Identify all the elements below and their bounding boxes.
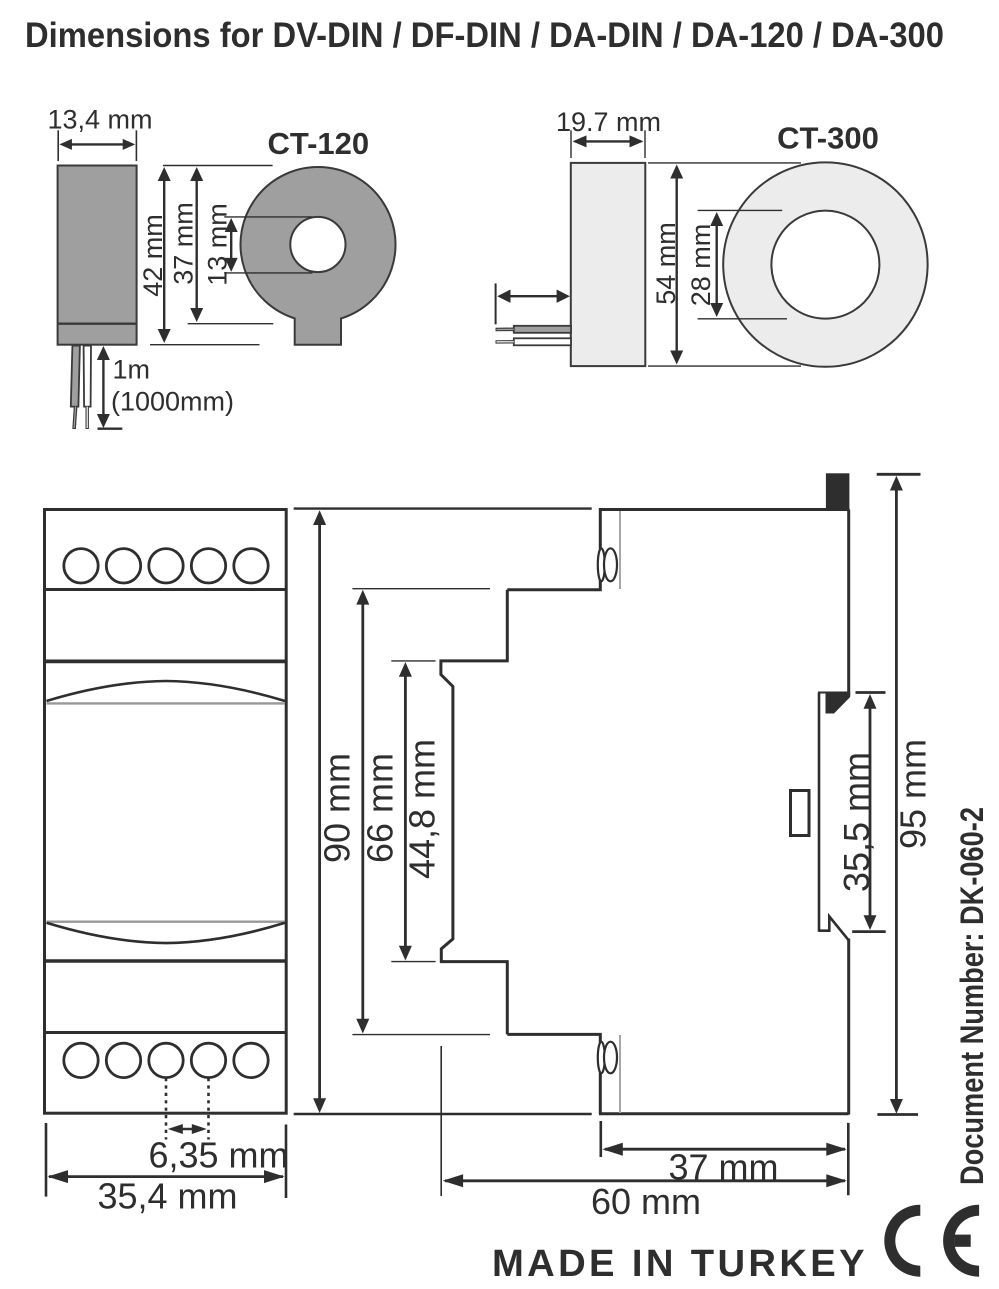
svg-text:54 mm: 54 mm <box>651 222 681 305</box>
svg-text:90 mm: 90 mm <box>317 753 358 863</box>
svg-text:19.7 mm: 19.7 mm <box>556 107 661 137</box>
svg-text:35,5 mm: 35,5 mm <box>836 752 877 892</box>
svg-text:37 mm: 37 mm <box>169 202 199 285</box>
svg-text:13,4 mm: 13,4 mm <box>47 104 152 134</box>
svg-text:44,8 mm: 44,8 mm <box>402 739 443 879</box>
svg-text:1m: 1m <box>113 355 151 385</box>
svg-text:13 mm: 13 mm <box>203 203 233 286</box>
svg-text:6,35 mm: 6,35 mm <box>148 1134 288 1175</box>
svg-text:60 mm: 60 mm <box>591 1181 701 1222</box>
svg-text:35,4 mm: 35,4 mm <box>97 1175 237 1216</box>
svg-text:Dimensions for DV-DIN / DF-DIN: Dimensions for DV-DIN / DF-DIN / DA-DIN … <box>25 15 944 55</box>
svg-text:CT-120: CT-120 <box>267 126 369 161</box>
svg-text:Document Number: DK-060-2: Document Number: DK-060-2 <box>954 807 990 1185</box>
svg-text:95 mm: 95 mm <box>893 739 934 849</box>
svg-text:28 mm: 28 mm <box>686 224 716 307</box>
svg-text:CT-300: CT-300 <box>777 120 879 155</box>
svg-text:42 mm: 42 mm <box>138 214 168 297</box>
svg-text:66 mm: 66 mm <box>360 753 401 863</box>
svg-text:(1000mm): (1000mm) <box>111 387 234 417</box>
